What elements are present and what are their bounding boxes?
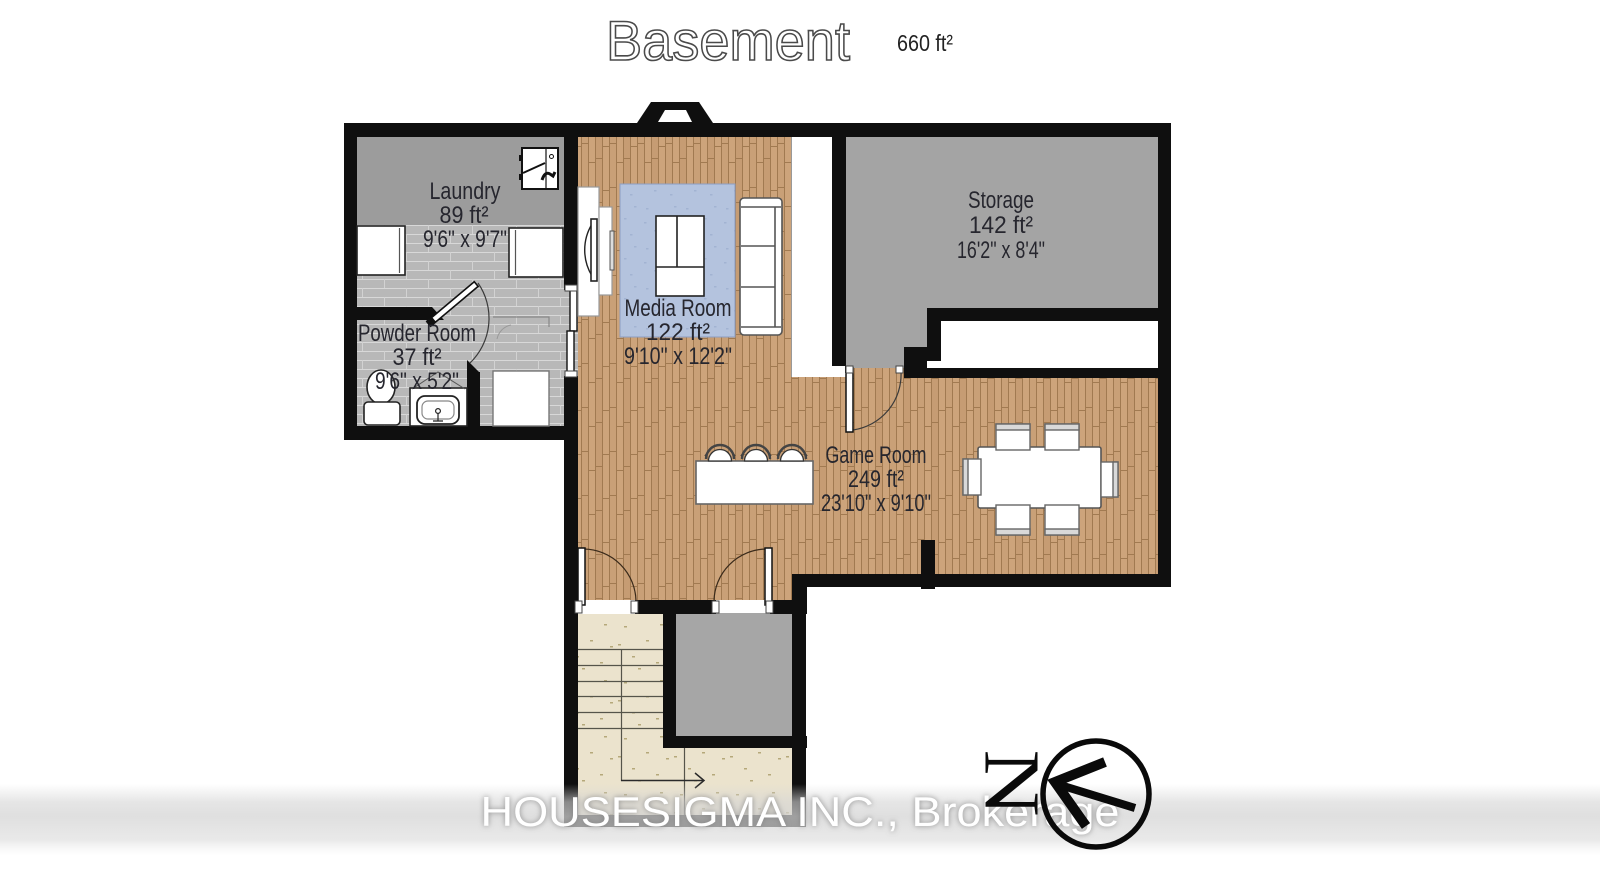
svg-text:660 ft²: 660 ft² [897, 30, 953, 56]
svg-text:23'10" x 9'10": 23'10" x 9'10" [821, 490, 931, 517]
svg-text:Storage: Storage [968, 187, 1034, 214]
svg-text:Basement: Basement [606, 9, 850, 72]
svg-text:Laundry: Laundry [430, 178, 501, 205]
svg-text:9'10" x 12'2": 9'10" x 12'2" [624, 343, 732, 370]
svg-text:Game Room: Game Room [826, 442, 927, 469]
svg-text:9'6" x 9'7": 9'6" x 9'7" [423, 226, 507, 253]
svg-text:89 ft²: 89 ft² [440, 202, 489, 229]
svg-text:Media Room: Media Room [625, 295, 732, 322]
svg-text:9'6" x 5'2": 9'6" x 5'2" [375, 368, 459, 395]
svg-text:37 ft²: 37 ft² [393, 344, 442, 371]
svg-text:16'2" x 8'4": 16'2" x 8'4" [957, 237, 1045, 264]
svg-text:142 ft²: 142 ft² [969, 212, 1033, 239]
svg-text:122 ft²: 122 ft² [646, 319, 710, 346]
svg-text:Powder Room: Powder Room [358, 320, 476, 347]
svg-text:249 ft²: 249 ft² [848, 466, 904, 493]
